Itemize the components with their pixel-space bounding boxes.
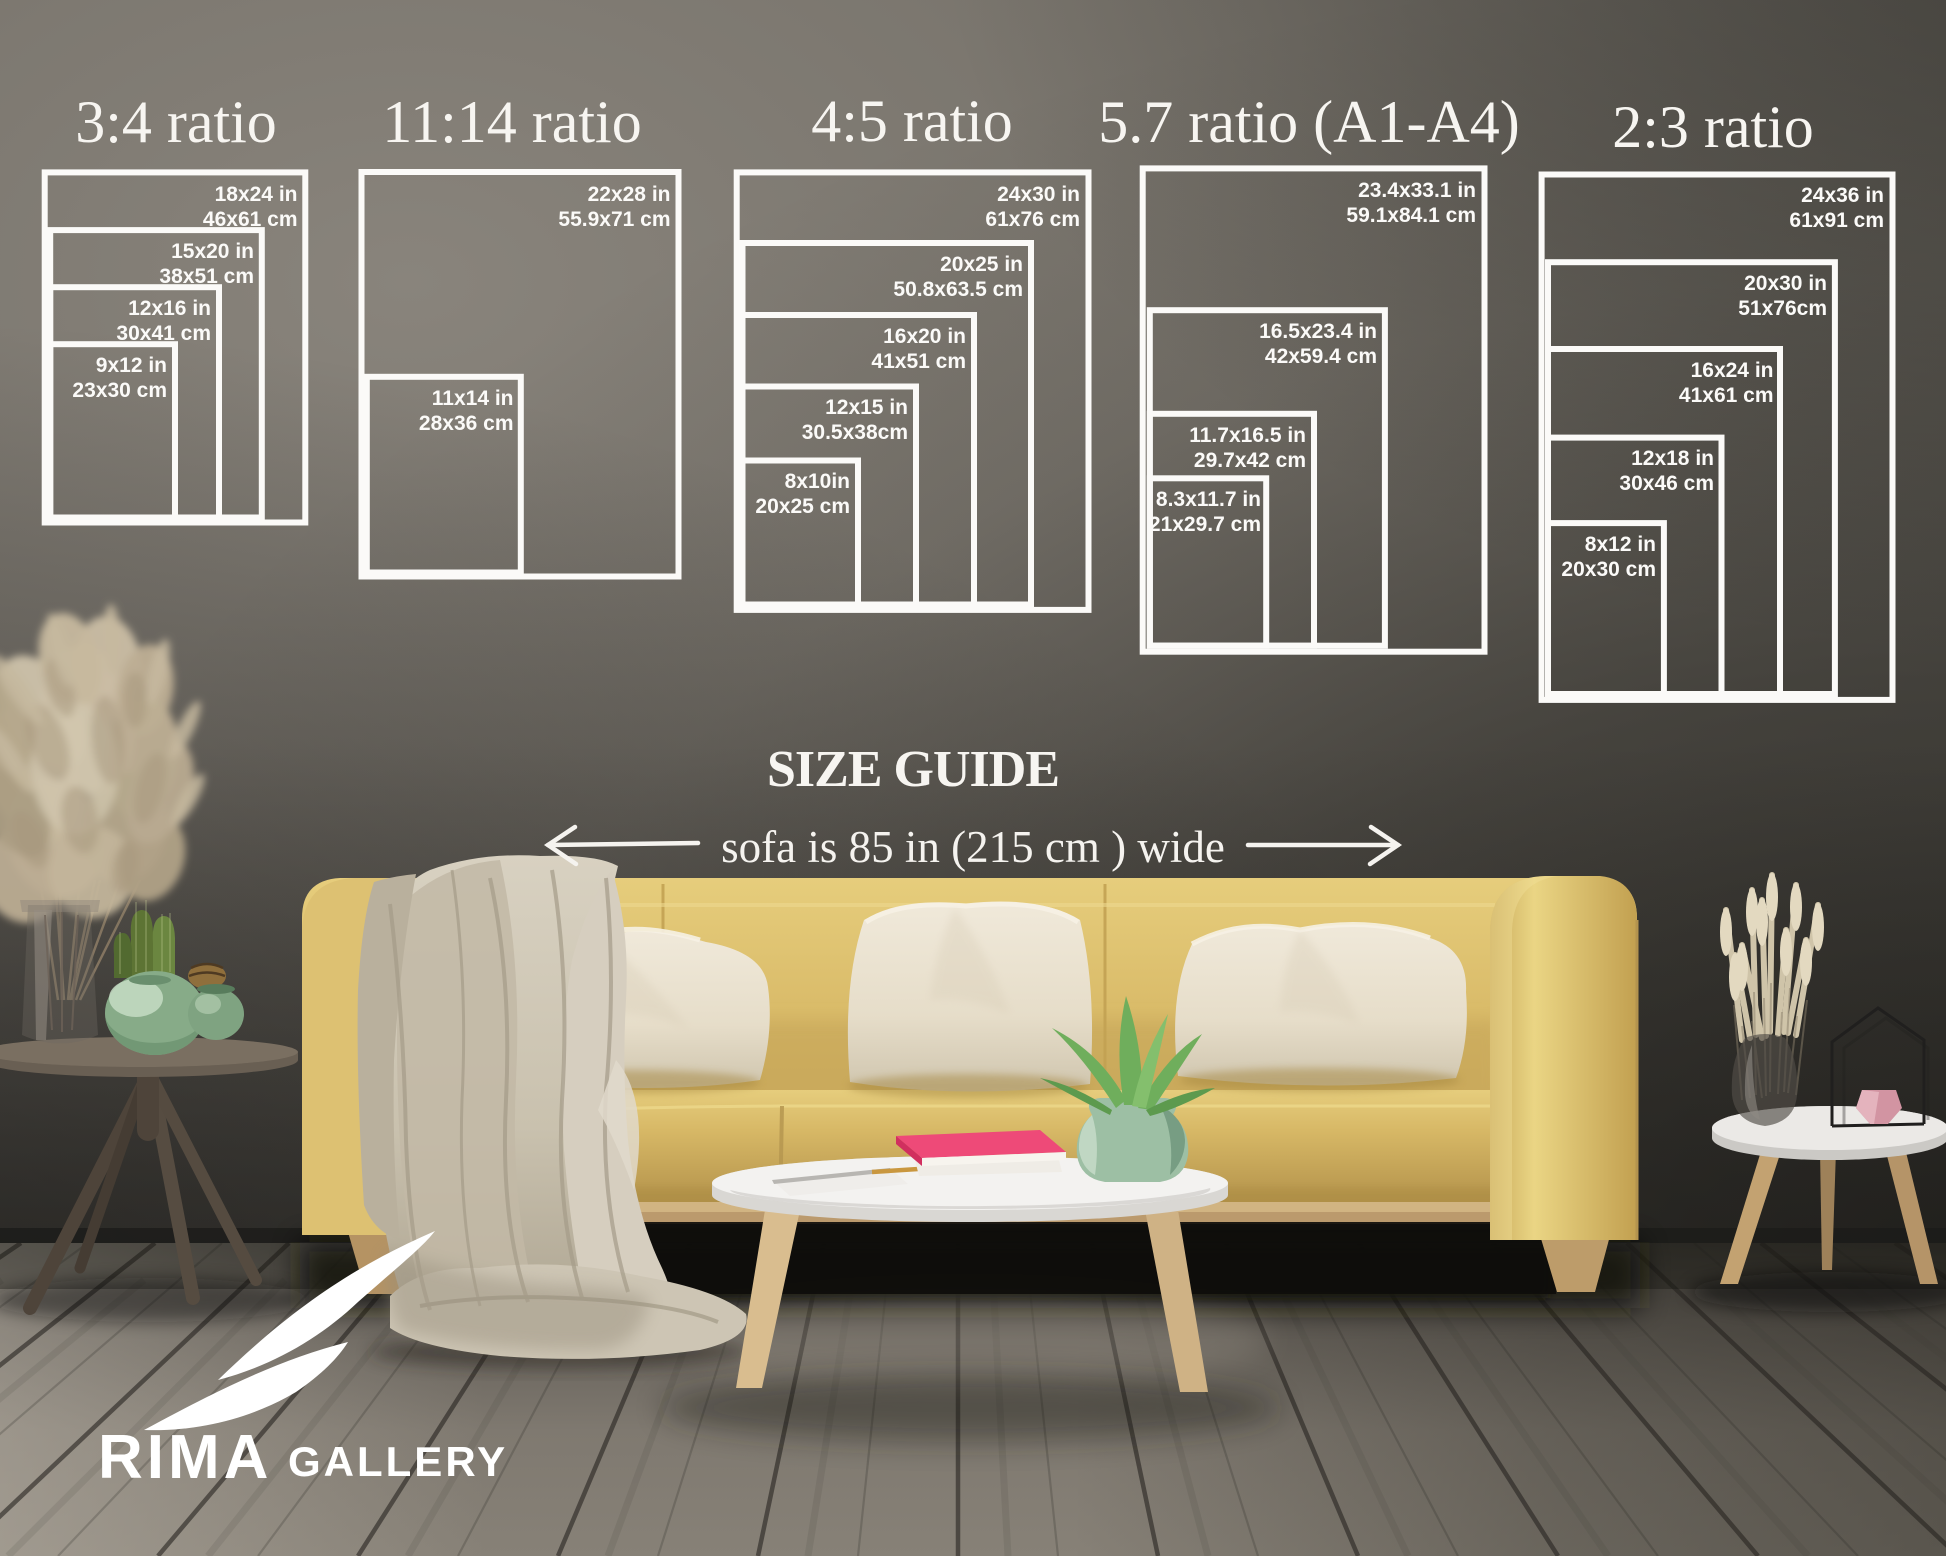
svg-text:55.9x71 cm: 55.9x71 cm — [558, 208, 670, 231]
svg-text:23x30 cm: 23x30 cm — [72, 379, 167, 402]
svg-text:11x14 in: 11x14 in — [432, 387, 514, 410]
svg-text:12x15 in: 12x15 in — [825, 396, 908, 419]
svg-text:12x18 in: 12x18 in — [1631, 447, 1714, 470]
svg-text:24x36 in: 24x36 in — [1801, 184, 1884, 207]
svg-text:9x12 in: 9x12 in — [96, 354, 167, 377]
svg-text:5.7 ratio (A1-A4): 5.7 ratio (A1-A4) — [1098, 89, 1520, 155]
svg-text:41x61 cm: 41x61 cm — [1679, 384, 1774, 407]
svg-text:4:5 ratio: 4:5 ratio — [811, 88, 1013, 154]
svg-text:59.1x84.1 cm: 59.1x84.1 cm — [1346, 204, 1476, 227]
svg-text:29.7x42 cm: 29.7x42 cm — [1194, 449, 1306, 472]
svg-text:18x24 in: 18x24 in — [215, 183, 298, 206]
svg-text:8.3x11.7 in: 8.3x11.7 in — [1156, 488, 1261, 511]
svg-text:8x12 in: 8x12 in — [1585, 533, 1656, 556]
svg-text:61x76 cm: 61x76 cm — [985, 208, 1080, 231]
svg-text:3:4 ratio: 3:4 ratio — [75, 89, 277, 155]
svg-text:42x59.4 cm: 42x59.4 cm — [1265, 345, 1377, 368]
svg-text:61x91 cm: 61x91 cm — [1789, 209, 1884, 232]
svg-text:50.8x63.5 cm: 50.8x63.5 cm — [893, 278, 1023, 301]
svg-text:20x25 cm: 20x25 cm — [755, 495, 850, 518]
svg-text:46x61 cm: 46x61 cm — [203, 208, 298, 231]
svg-text:24x30 in: 24x30 in — [997, 183, 1080, 206]
svg-text:30x46 cm: 30x46 cm — [1619, 472, 1714, 495]
svg-text:16x24 in: 16x24 in — [1691, 359, 1774, 382]
svg-text:15x20 in: 15x20 in — [171, 240, 254, 263]
svg-text:41x51 cm: 41x51 cm — [871, 350, 966, 373]
svg-text:SIZE GUIDE: SIZE GUIDE — [767, 741, 1059, 798]
svg-text:21x29.7 cm: 21x29.7 cm — [1149, 513, 1261, 536]
svg-text:51x76cm: 51x76cm — [1738, 297, 1827, 320]
svg-text:RIMA: RIMA — [98, 1423, 272, 1492]
svg-text:11.7x16.5 in: 11.7x16.5 in — [1189, 424, 1306, 447]
svg-text:12x16 in: 12x16 in — [128, 297, 211, 320]
svg-text:30x41 cm: 30x41 cm — [116, 322, 211, 345]
svg-text:16x20 in: 16x20 in — [883, 325, 966, 348]
svg-text:30.5x38cm: 30.5x38cm — [802, 421, 908, 444]
svg-text:20x25 in: 20x25 in — [940, 253, 1023, 276]
svg-text:2:3 ratio: 2:3 ratio — [1612, 94, 1814, 160]
svg-text:20x30 cm: 20x30 cm — [1561, 558, 1656, 581]
svg-text:8x10in: 8x10in — [785, 470, 850, 493]
svg-text:20x30 in: 20x30 in — [1744, 272, 1827, 295]
svg-text:GALLERY: GALLERY — [288, 1438, 508, 1485]
svg-text:16.5x23.4 in: 16.5x23.4 in — [1259, 320, 1377, 343]
svg-text:22x28 in: 22x28 in — [588, 183, 671, 206]
svg-text:sofa is 85 in (215 cm ) wide: sofa is 85 in (215 cm ) wide — [721, 822, 1225, 872]
svg-text:11:14 ratio: 11:14 ratio — [382, 89, 641, 155]
svg-text:23.4x33.1 in: 23.4x33.1 in — [1358, 179, 1476, 202]
svg-text:38x51 cm: 38x51 cm — [159, 265, 254, 288]
svg-text:28x36 cm: 28x36 cm — [419, 412, 514, 435]
